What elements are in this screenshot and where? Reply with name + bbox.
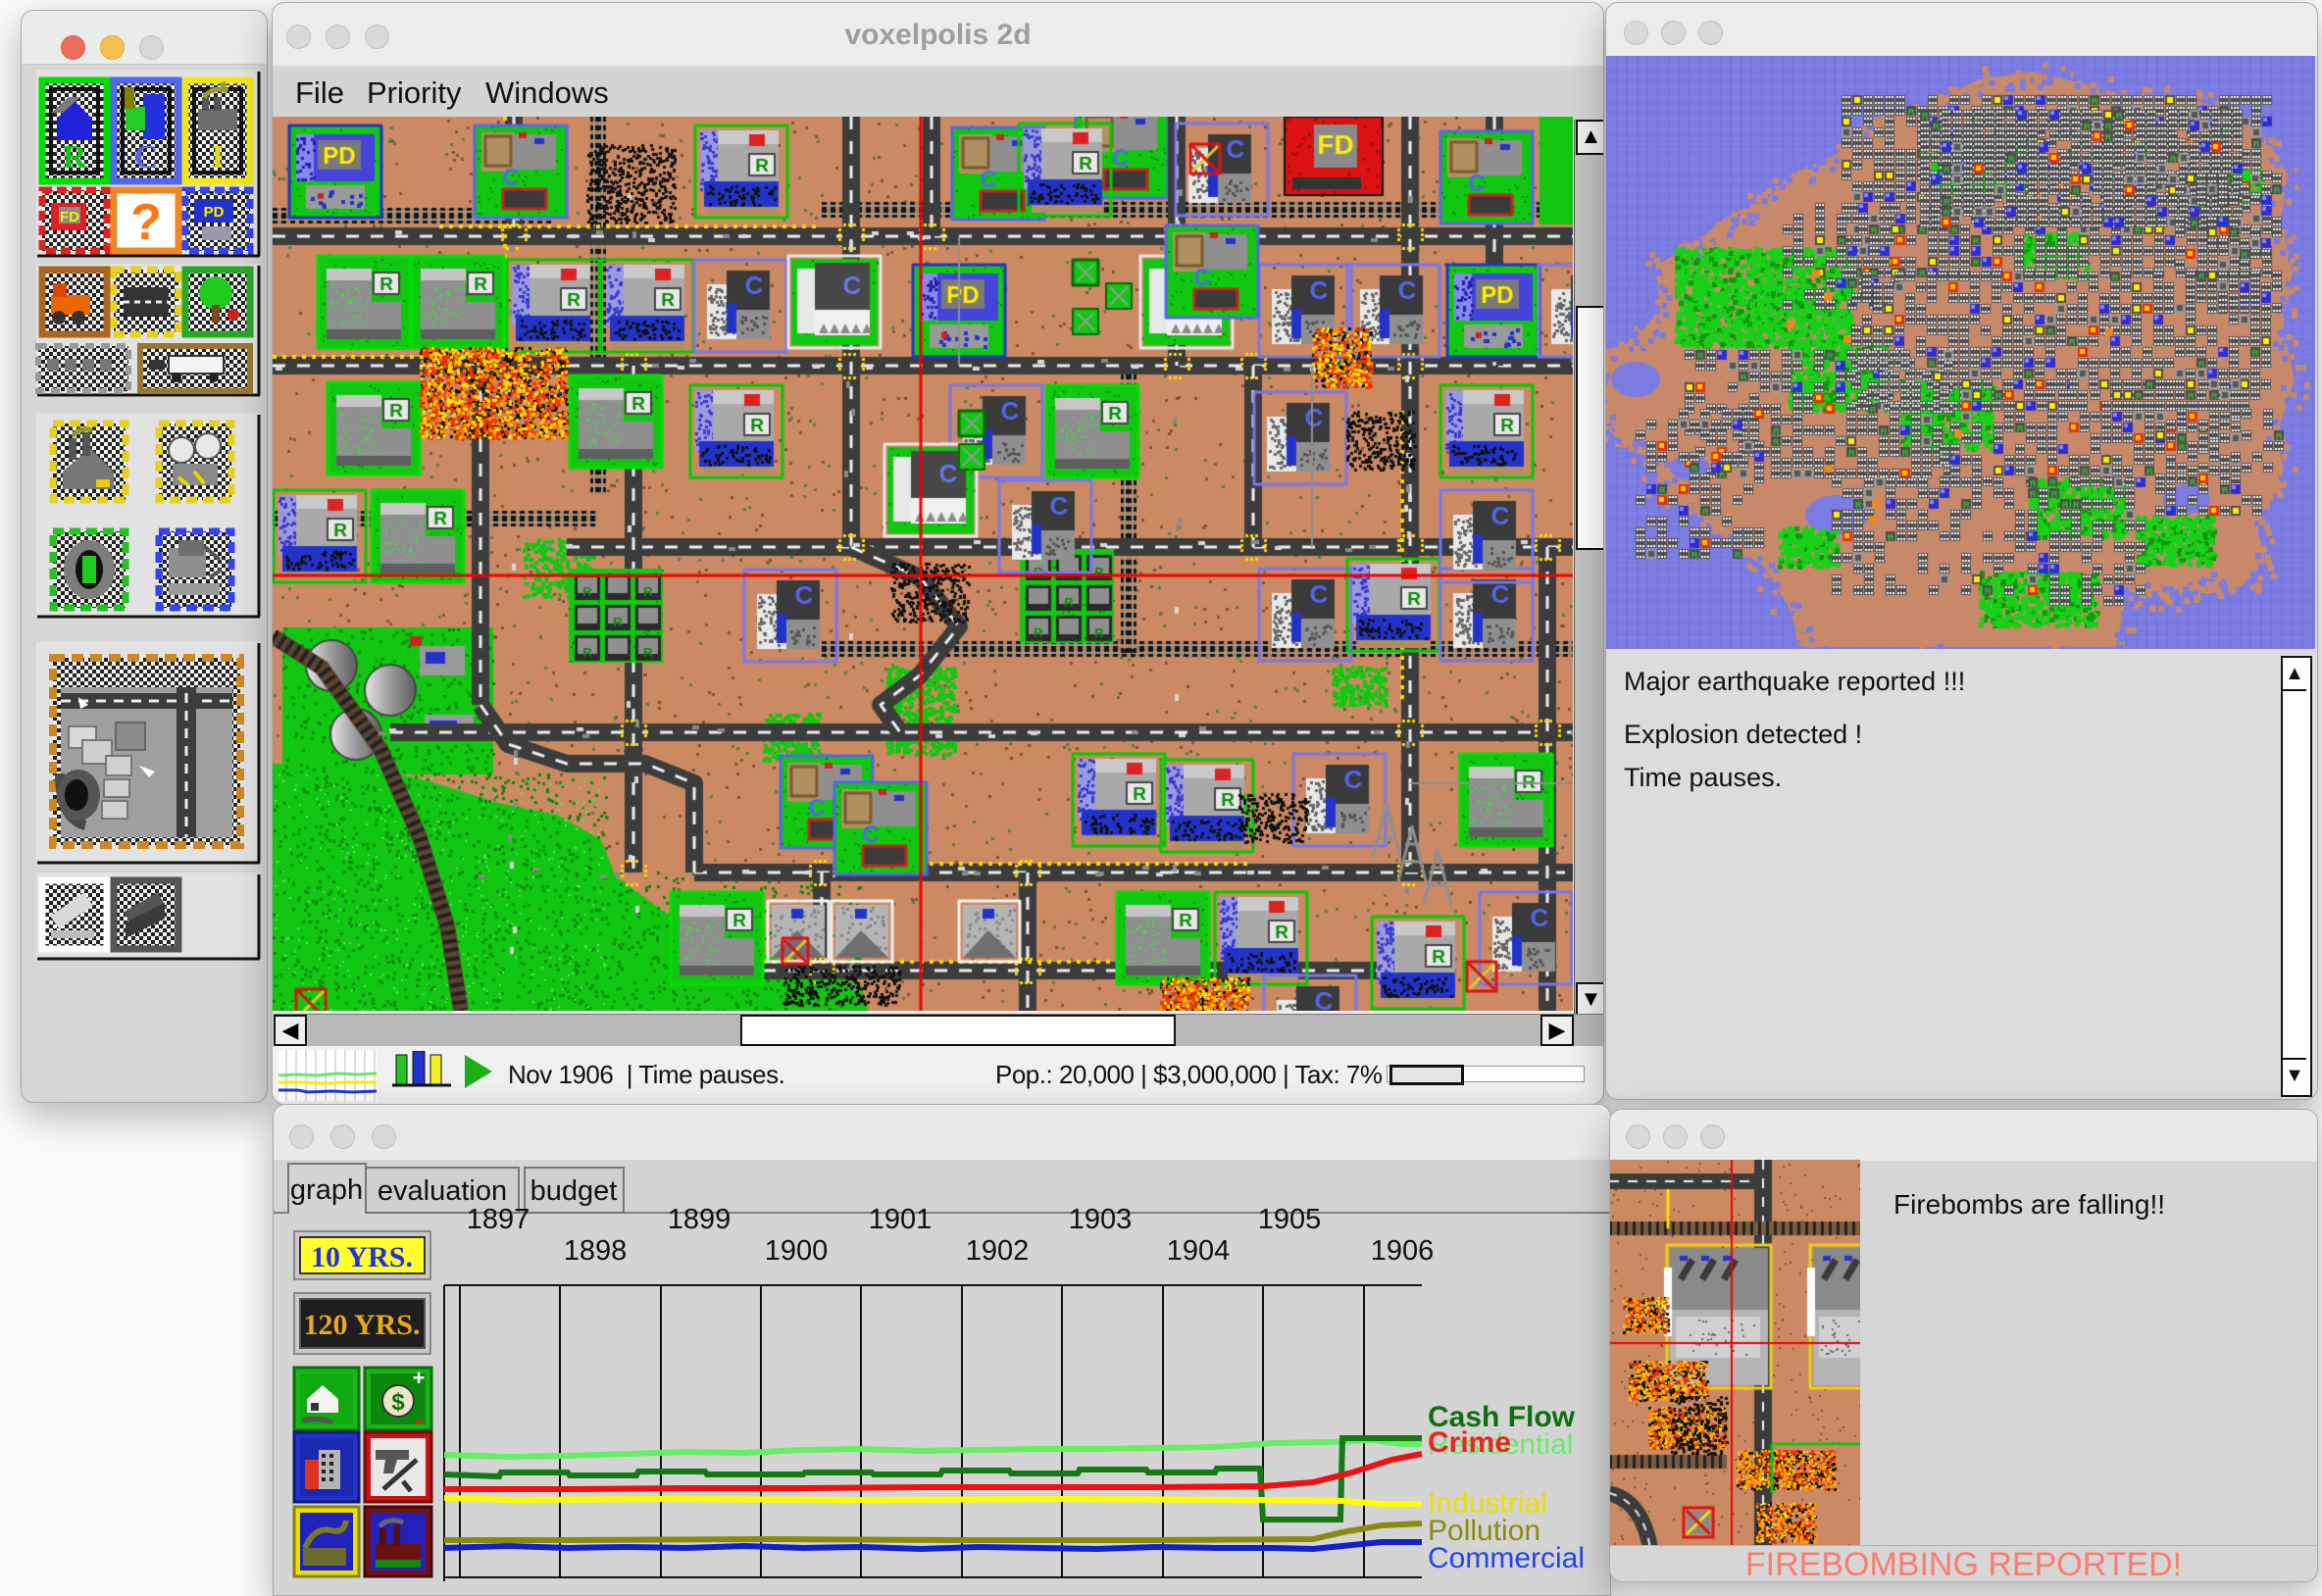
svg-text:1906: 1906 — [1371, 1235, 1435, 1267]
svg-text:1898: 1898 — [564, 1235, 628, 1267]
svg-text:FD: FD — [60, 209, 79, 225]
svg-text:1901: 1901 — [869, 1204, 933, 1235]
svg-text:I: I — [211, 139, 224, 175]
svg-text:R: R — [63, 139, 87, 175]
svg-text:Commercial: Commercial — [1428, 1542, 1585, 1574]
svg-text:1902: 1902 — [966, 1235, 1030, 1267]
svg-text:evaluation: evaluation — [378, 1175, 507, 1207]
svg-text:budget: budget — [530, 1175, 618, 1207]
svg-text:1905: 1905 — [1258, 1204, 1322, 1235]
svg-text:+: + — [413, 1366, 426, 1390]
svg-text:10 YRS.: 10 YRS. — [311, 1241, 413, 1273]
svg-text:graph: graph — [290, 1174, 363, 1206]
svg-text:PD: PD — [204, 204, 225, 221]
svg-text:Crime: Crime — [1428, 1426, 1511, 1459]
svg-text:1903: 1903 — [1069, 1204, 1133, 1235]
svg-text:1900: 1900 — [765, 1235, 829, 1267]
svg-text:1904: 1904 — [1167, 1235, 1231, 1267]
svg-text:C: C — [134, 139, 159, 175]
svg-text:1899: 1899 — [668, 1204, 732, 1235]
svg-text:120 YRS.: 120 YRS. — [304, 1309, 421, 1341]
svg-text:?: ? — [130, 194, 162, 251]
svg-text:$: $ — [391, 1389, 405, 1416]
svg-text:-: - — [415, 1405, 424, 1434]
svg-text:1897: 1897 — [467, 1204, 530, 1235]
